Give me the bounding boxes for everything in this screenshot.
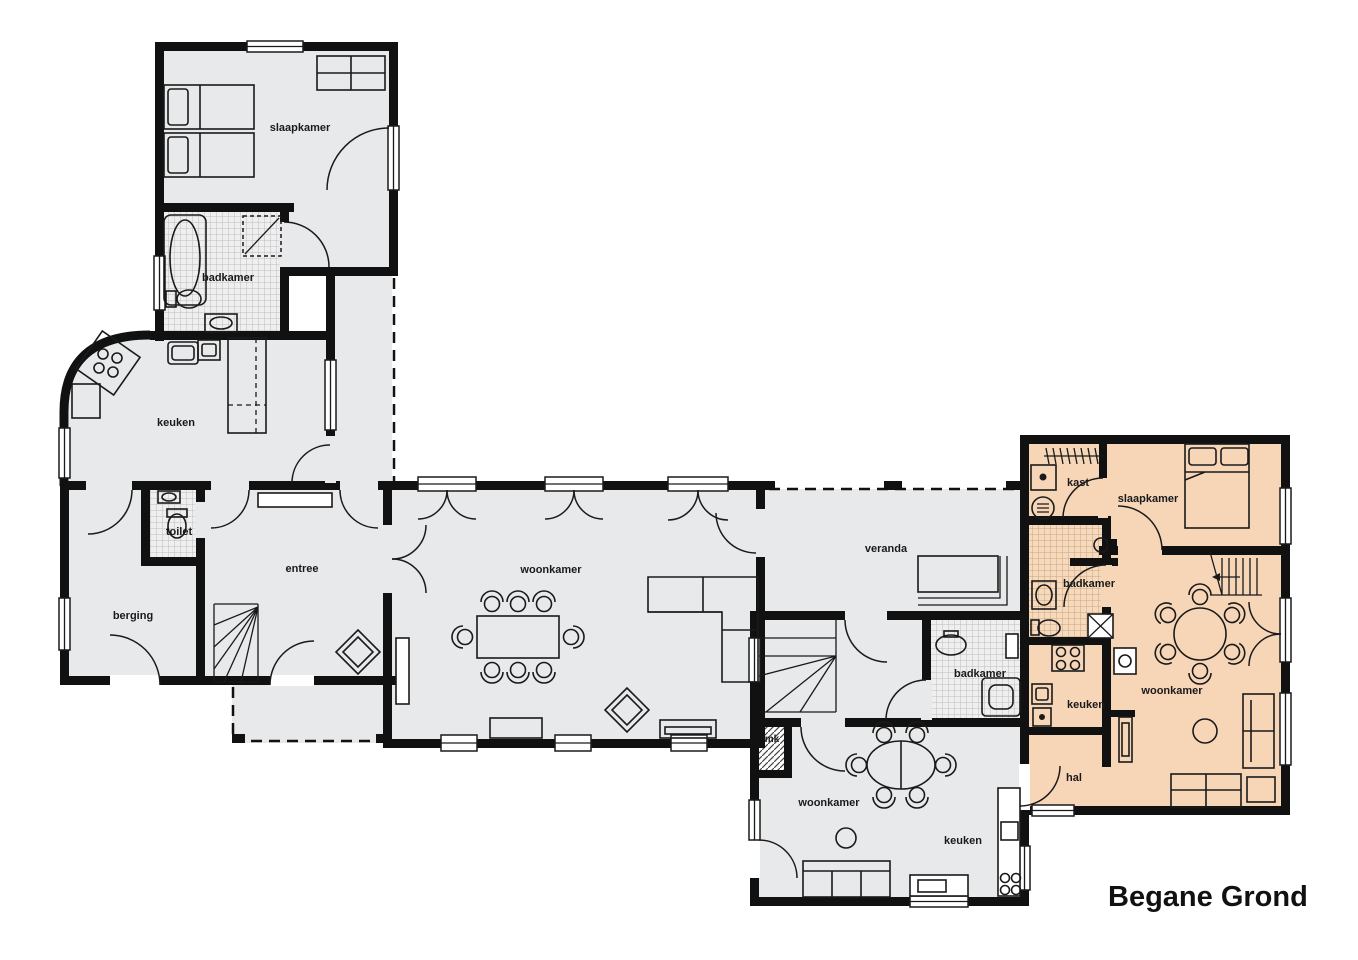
room-label-entree: entree: [285, 563, 318, 575]
shelf-middle-badkamer: [1006, 634, 1018, 658]
room-floor-woonkamer-central: [392, 490, 756, 739]
room-floor-hal: [1029, 735, 1111, 806]
room-label-woonkamer-central: woonkamer: [519, 564, 582, 576]
plan-title: Begane Grond: [1108, 881, 1308, 913]
floorplan-canvas: slaapkamer badkamer keuken toilet bergin…: [0, 0, 1358, 960]
room-floor-keuken-right: [1029, 645, 1102, 727]
room-label-keuken-right: keuken: [1067, 699, 1105, 711]
room-label-keuken-middle: keuken: [944, 835, 982, 847]
sideboard-entree: [258, 493, 332, 507]
room-label-slaapkamer-right: slaapkamer: [1118, 493, 1179, 505]
corridor-floor: [335, 276, 392, 486]
room-label-woonkamer-middle: woonkamer: [797, 797, 860, 809]
room-label-hal: hal: [1066, 772, 1082, 784]
room-label-keuken-left: keuken: [157, 417, 195, 429]
porch-floor: [232, 685, 389, 743]
room-label-berging: berging: [113, 610, 153, 622]
room-floor-entree: [205, 490, 392, 676]
room-label-toilet: toilet: [166, 526, 193, 538]
shaft-cross-right: [1088, 614, 1113, 638]
room-label-slaapkamer-left: slaapkamer: [270, 122, 331, 134]
room-label-woonkamer-right: woonkamer: [1140, 685, 1203, 697]
room-label-badkamer-middle: badkamer: [954, 668, 1007, 680]
room-label-badkamer-left: badkamer: [202, 272, 255, 284]
room-label-badkamer-right: badkamer: [1063, 578, 1116, 590]
room-label-mk: mk: [765, 734, 780, 745]
room-label-kast: kast: [1067, 477, 1089, 489]
room-label-veranda: veranda: [865, 543, 908, 555]
radiator-central: [396, 638, 409, 704]
